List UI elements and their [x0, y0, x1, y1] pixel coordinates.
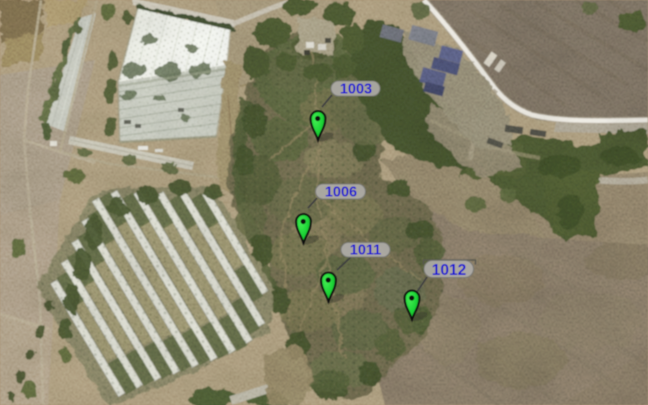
svg-text:1003: 1003 [340, 82, 372, 98]
svg-text:1012: 1012 [432, 262, 466, 279]
svg-text:1011: 1011 [350, 243, 381, 259]
svg-text:1006: 1006 [325, 185, 357, 201]
